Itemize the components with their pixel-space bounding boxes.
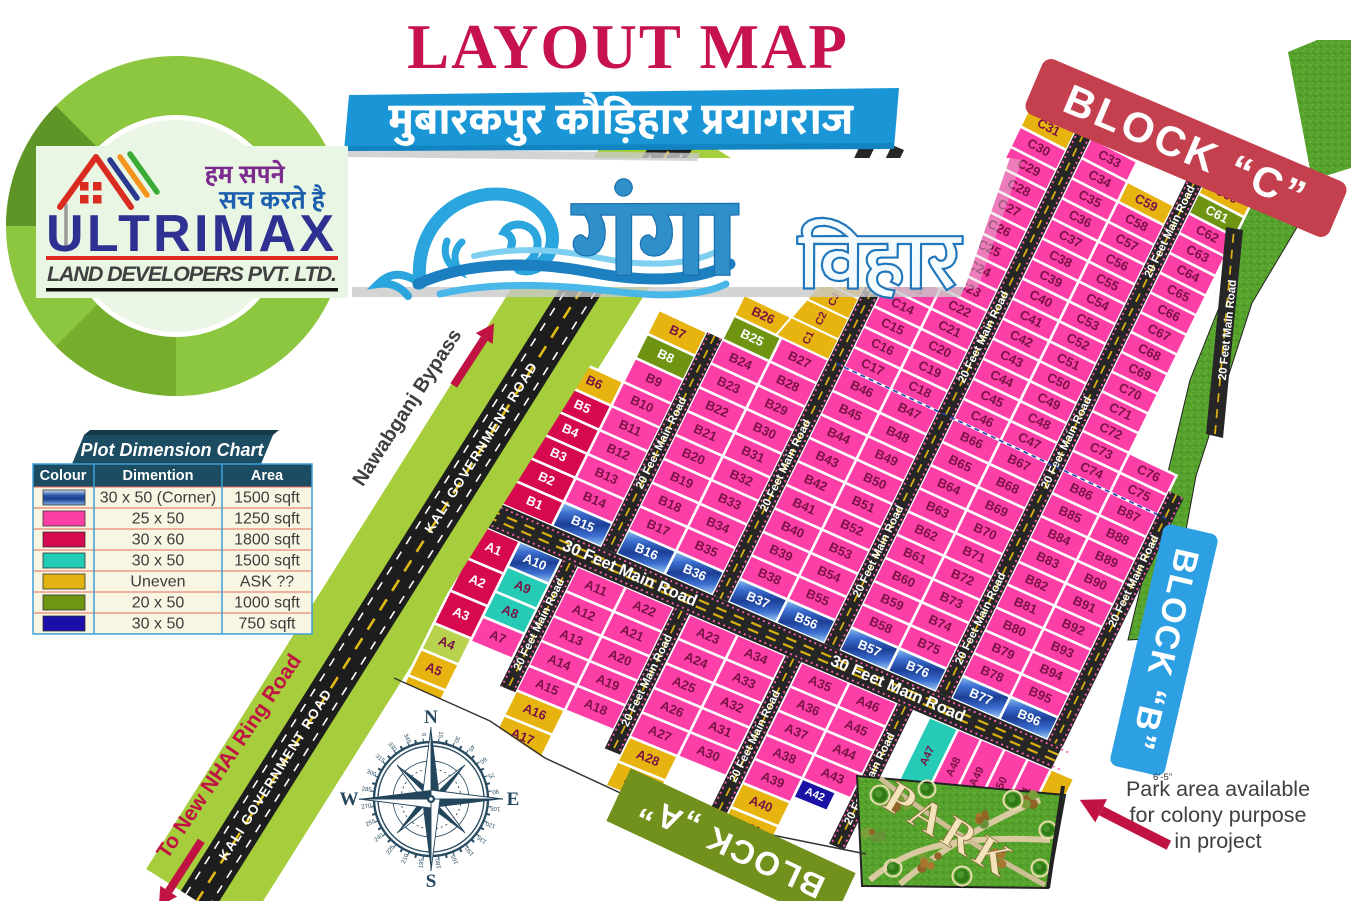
svg-text:Colour: Colour	[40, 468, 87, 484]
svg-text:1250 sqft: 1250 sqft	[234, 511, 300, 528]
svg-text:30 x 50 (Corner): 30 x 50 (Corner)	[100, 490, 217, 507]
svg-text:Area: Area	[251, 468, 284, 484]
svg-text:6’-5”: 6’-5”	[1153, 772, 1172, 783]
svg-text:1500 sqft: 1500 sqft	[234, 490, 300, 507]
svg-text:Uneven: Uneven	[130, 574, 185, 591]
svg-text:for colony purpose: for colony purpose	[1130, 803, 1307, 827]
svg-text:30 x 60: 30 x 60	[132, 532, 185, 549]
svg-text:S: S	[426, 871, 437, 892]
svg-text:20 x 50: 20 x 50	[132, 595, 185, 612]
svg-text:in project: in project	[1174, 829, 1261, 853]
svg-text:ASK ??: ASK ??	[240, 574, 294, 591]
svg-text:E: E	[507, 789, 520, 810]
svg-text:LAND DEVELOPERS PVT. LTD.: LAND DEVELOPERS PVT. LTD.	[47, 262, 337, 286]
svg-text:25 x 50: 25 x 50	[132, 511, 185, 528]
svg-text:1000 sqft: 1000 sqft	[234, 595, 300, 612]
svg-text:ULTRIMAX: ULTRIMAX	[46, 205, 334, 263]
svg-text:Plot Dimension Chart: Plot Dimension Chart	[80, 440, 264, 460]
svg-text:W: W	[340, 789, 359, 810]
svg-text:1800 sqft: 1800 sqft	[234, 532, 300, 549]
svg-text:N: N	[424, 707, 438, 728]
svg-text:30 x 50: 30 x 50	[132, 553, 185, 570]
svg-text:30 x 50: 30 x 50	[132, 616, 185, 633]
svg-text:Dimention: Dimention	[123, 468, 194, 484]
svg-text:750 sqft: 750 sqft	[239, 616, 296, 633]
svg-text:1500 sqft: 1500 sqft	[234, 553, 300, 570]
svg-text:LAYOUT MAP: LAYOUT MAP	[407, 12, 849, 82]
